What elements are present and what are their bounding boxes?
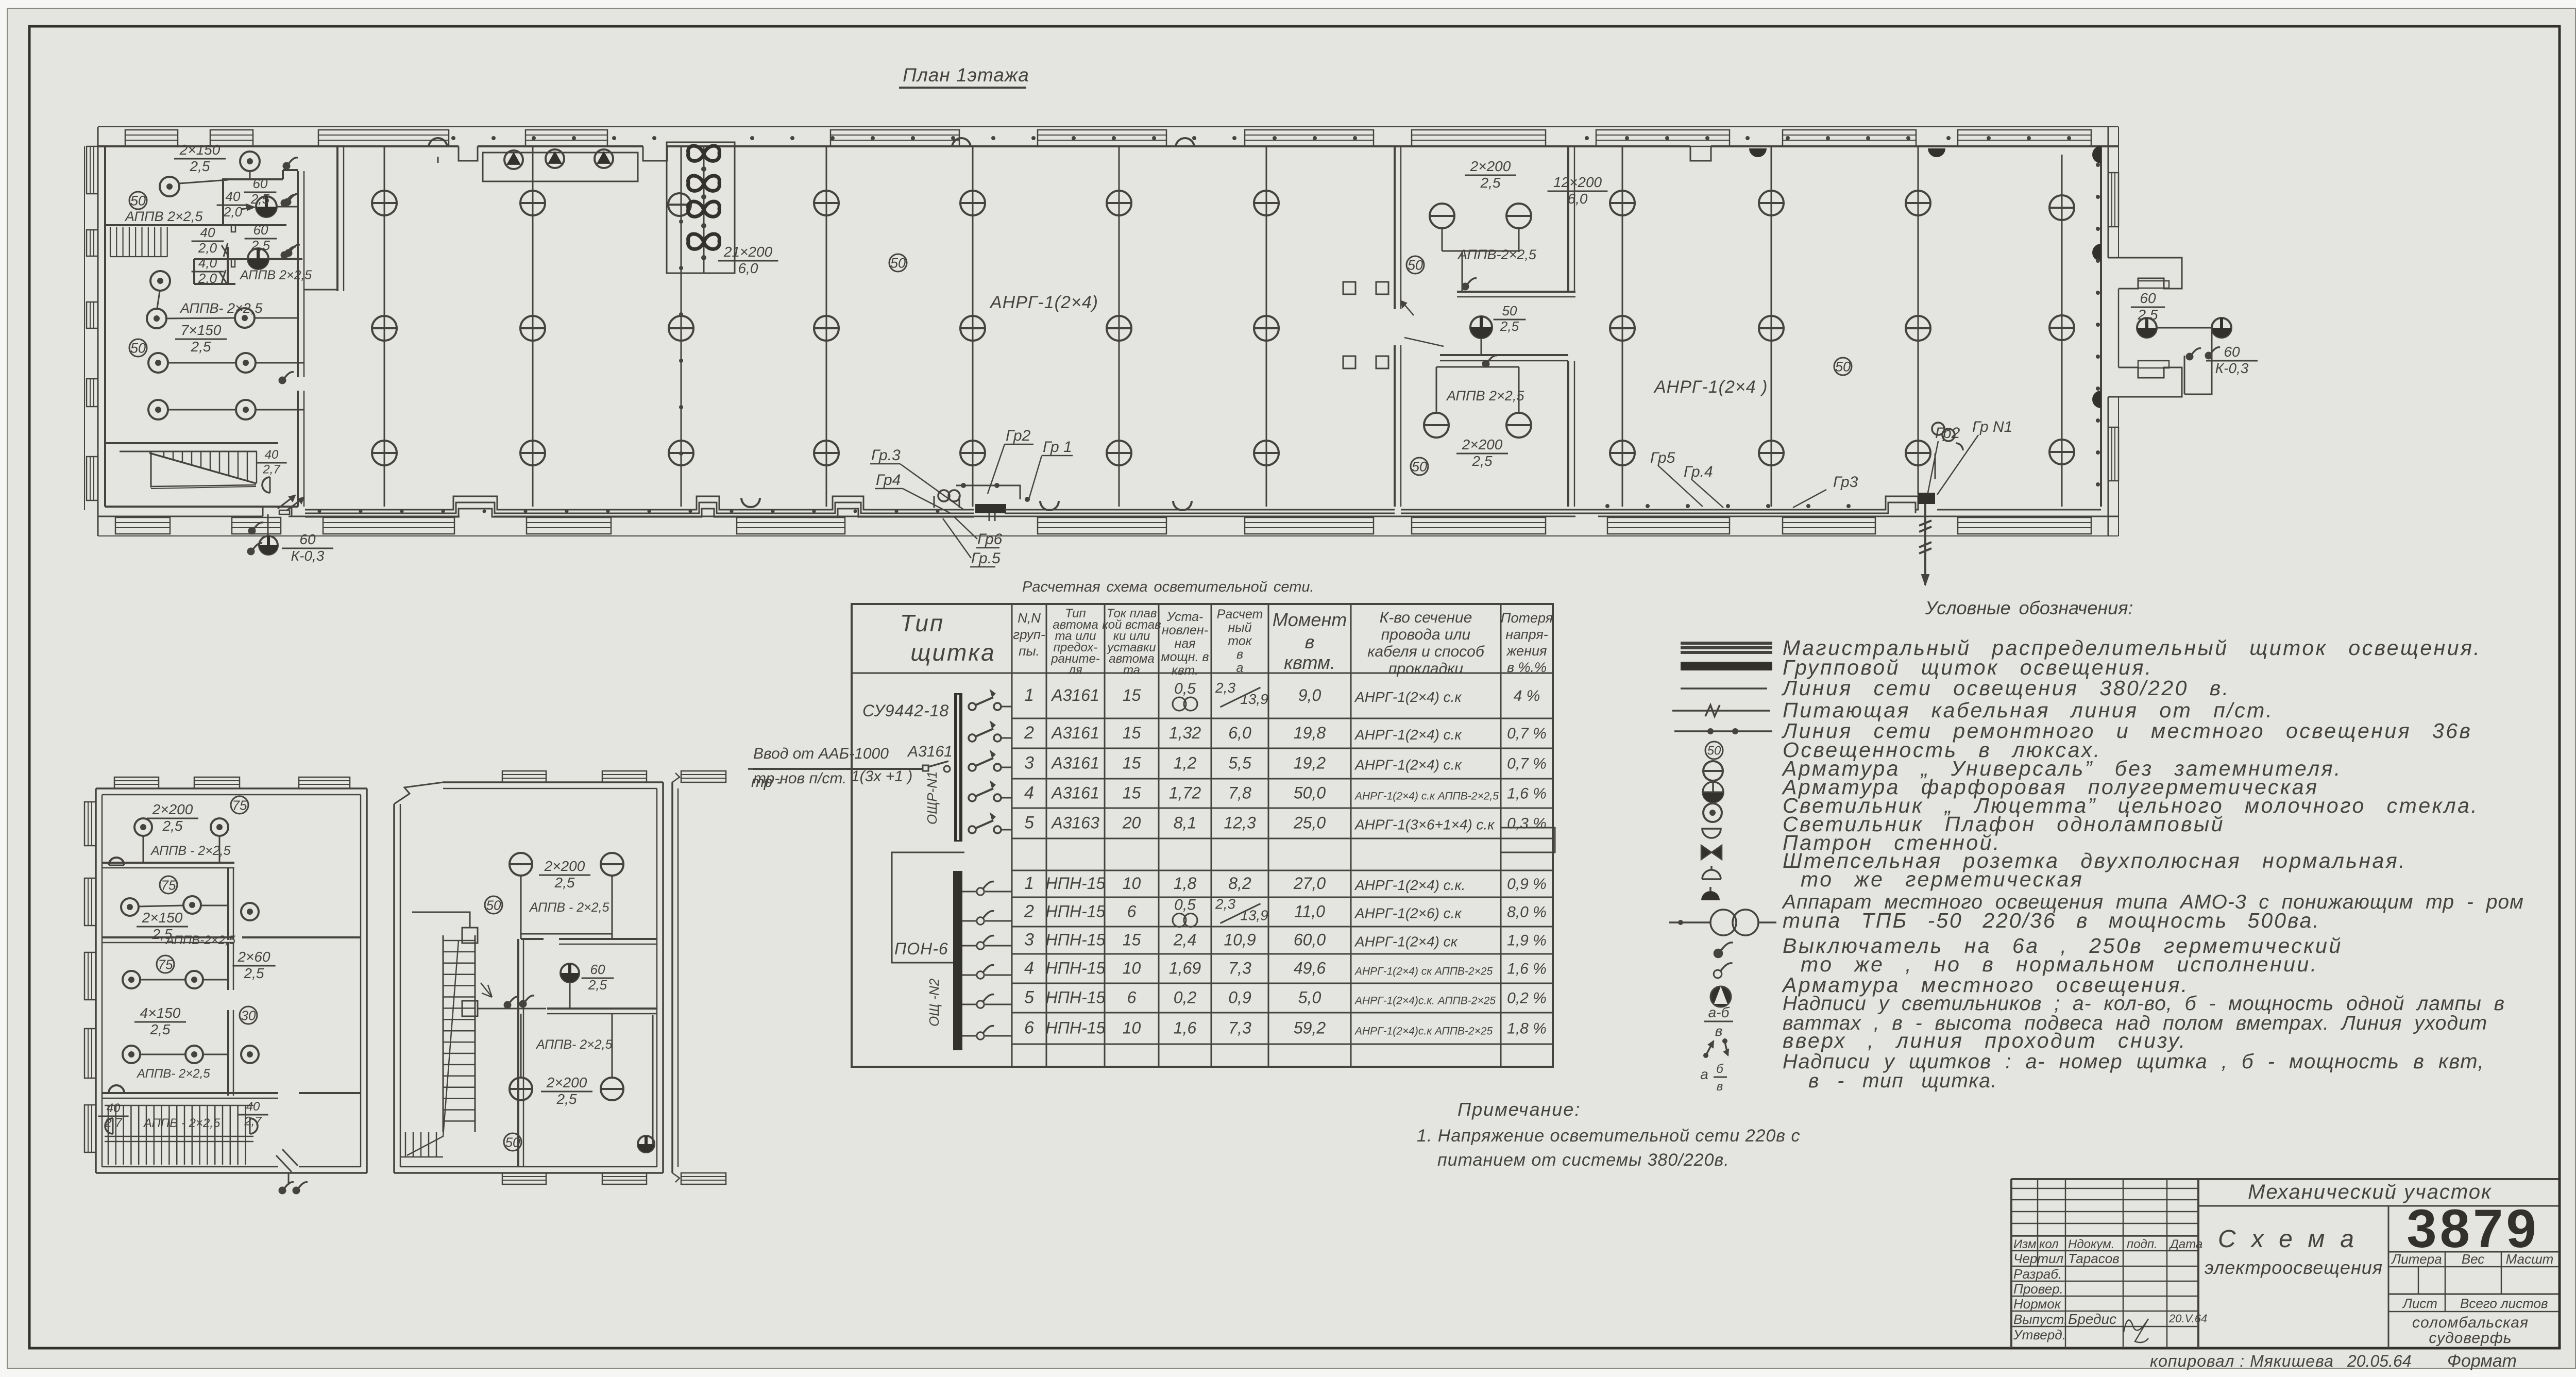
svg-text:Линия сети освещения 380: Линия сети освещения 380/220 в. xyxy=(1781,676,2230,700)
svg-text:6: 6 xyxy=(1127,902,1137,921)
svg-text:50: 50 xyxy=(1412,459,1427,475)
svg-text:Уста-: Уста- xyxy=(1166,610,1204,624)
svg-text:10,9: 10,9 xyxy=(1224,931,1256,949)
svg-text:75: 75 xyxy=(161,877,176,893)
svg-text:1,2: 1,2 xyxy=(1174,754,1197,773)
svg-text:50: 50 xyxy=(130,193,146,209)
svg-text:3879: 3879 xyxy=(2406,1199,2539,1259)
svg-text:50: 50 xyxy=(1502,303,1517,318)
svg-text:груп-: груп- xyxy=(1013,627,1045,642)
svg-text:2,5: 2,5 xyxy=(1500,318,1519,334)
svg-text:Гр N1: Гр N1 xyxy=(1972,418,2012,435)
svg-text:59,2: 59,2 xyxy=(1294,1019,1326,1037)
svg-text:15: 15 xyxy=(1123,754,1141,773)
svg-text:прокладки: прокладки xyxy=(1388,660,1463,677)
svg-text:АППВ - 2×2,5: АППВ - 2×2,5 xyxy=(143,1116,221,1130)
svg-text:АНРГ-1(2×4) с.к: АНРГ-1(2×4) с.к xyxy=(1354,757,1462,773)
svg-text:1: 1 xyxy=(1024,685,1034,705)
svg-text:2,0: 2,0 xyxy=(198,240,217,256)
svg-text:19,2: 19,2 xyxy=(1294,754,1326,773)
svg-text:10: 10 xyxy=(1123,959,1141,978)
svg-text:40: 40 xyxy=(107,1101,121,1115)
svg-text:60: 60 xyxy=(253,176,268,191)
svg-text:ля: ля xyxy=(1067,663,1082,677)
svg-text:2,5: 2,5 xyxy=(554,875,575,891)
svg-text:2: 2 xyxy=(1024,723,1034,743)
svg-text:АППВ- 2×2,5: АППВ- 2×2,5 xyxy=(535,1037,613,1052)
svg-text:50: 50 xyxy=(1707,744,1721,758)
svg-text:1,72: 1,72 xyxy=(1169,784,1201,802)
svg-text:в: в xyxy=(1236,647,1243,662)
svg-text:60,0: 60,0 xyxy=(1294,931,1326,949)
svg-text:Ввод от ААБ-1000: Ввод от ААБ-1000 xyxy=(753,745,889,762)
svg-text:новлен-: новлен- xyxy=(1162,623,1208,637)
svg-text:50: 50 xyxy=(1408,258,1423,273)
svg-text:20.V.64: 20.V.64 xyxy=(2168,1312,2207,1325)
svg-text:2×200: 2×200 xyxy=(1462,436,1503,452)
svg-text:50: 50 xyxy=(890,256,906,271)
svg-text:6: 6 xyxy=(1024,1018,1034,1038)
svg-text:19,8: 19,8 xyxy=(1294,724,1326,742)
svg-text:К-0,3: К-0,3 xyxy=(2215,360,2249,376)
svg-text:20.05.64: 20.05.64 xyxy=(2347,1352,2412,1370)
svg-text:а-б: а-б xyxy=(1708,1004,1730,1020)
svg-text:Бредис: Бредис xyxy=(2068,1311,2116,1327)
svg-text:НПН-15: НПН-15 xyxy=(1046,988,1106,1007)
svg-text:4×150: 4×150 xyxy=(140,1005,181,1021)
svg-text:Потеря: Потеря xyxy=(1501,610,1553,626)
svg-text:1(3х +1 ): 1(3х +1 ) xyxy=(851,768,912,785)
svg-text:3: 3 xyxy=(1024,753,1034,773)
svg-text:питанием от системы 380/220: питанием от системы 380/220в. xyxy=(1437,1150,1730,1170)
svg-text:0,9 %: 0,9 % xyxy=(1507,876,1547,893)
svg-text:7,3: 7,3 xyxy=(1228,959,1251,978)
svg-text:НПН-15: НПН-15 xyxy=(1046,902,1106,921)
svg-text:6,0: 6,0 xyxy=(1228,724,1251,742)
svg-text:2,0: 2,0 xyxy=(198,271,217,286)
svg-text:квтм.: квтм. xyxy=(1284,652,1335,673)
svg-text:Примечание:: Примечание: xyxy=(1458,1099,1581,1120)
svg-text:Тип: Тип xyxy=(900,610,944,636)
svg-text:в: в xyxy=(1717,1080,1723,1094)
svg-text:Формат: Формат xyxy=(2447,1351,2517,1371)
svg-text:0,7 %: 0,7 % xyxy=(1507,725,1547,742)
svg-text:60: 60 xyxy=(2224,344,2240,360)
svg-text:20: 20 xyxy=(1122,814,1141,832)
svg-text:2,5: 2,5 xyxy=(1480,175,1501,191)
svg-text:АНРГ-1(2×4) ск АППВ-2×25: АНРГ-1(2×4) ск АППВ-2×25 xyxy=(1354,966,1493,978)
svg-text:Расчетная схема осветите: Расчетная схема осветительной сети. xyxy=(1022,579,1314,595)
svg-text:50: 50 xyxy=(505,1134,520,1150)
svg-text:ток: ток xyxy=(1228,634,1252,648)
svg-text:АППВ 2×2,5: АППВ 2×2,5 xyxy=(1446,388,1524,404)
svg-text:5: 5 xyxy=(1024,813,1034,833)
svg-text:15: 15 xyxy=(1123,784,1141,802)
svg-text:А3161: А3161 xyxy=(907,743,953,760)
svg-text:А3161: А3161 xyxy=(1050,784,1099,802)
svg-text:типа ТПБ -50 220/36 в: типа ТПБ -50 220/36 в мощность 500ва. xyxy=(1783,909,2320,932)
svg-text:СУ9442-18: СУ9442-18 xyxy=(862,701,949,720)
svg-text:13,9: 13,9 xyxy=(1240,908,1268,923)
svg-text:2,5: 2,5 xyxy=(162,818,183,834)
svg-text:6: 6 xyxy=(1127,988,1137,1007)
svg-text:в %.%: в %.% xyxy=(1507,660,1547,675)
svg-text:Всего листов: Всего листов xyxy=(2460,1296,2548,1311)
svg-text:ПОН-6: ПОН-6 xyxy=(894,939,948,958)
svg-text:копировал : Мякишева: копировал : Мякишева xyxy=(2150,1352,2334,1370)
svg-text:1,69: 1,69 xyxy=(1169,959,1201,978)
svg-text:Изм.: Изм. xyxy=(2013,1237,2040,1251)
svg-text:12,3: 12,3 xyxy=(1224,814,1256,832)
svg-text:Дата: Дата xyxy=(2168,1237,2202,1251)
svg-text:8,1: 8,1 xyxy=(1174,814,1196,832)
svg-text:Гр.4: Гр.4 xyxy=(1684,463,1713,480)
svg-text:в: в xyxy=(1715,1023,1723,1039)
svg-text:0,3 %: 0,3 % xyxy=(1507,815,1547,832)
svg-text:1,6: 1,6 xyxy=(1174,1019,1197,1037)
svg-text:АНРГ-1(2×4): АНРГ-1(2×4) xyxy=(989,293,1098,312)
svg-text:ОЩ -N2: ОЩ -N2 xyxy=(926,978,942,1027)
svg-text:А3163: А3163 xyxy=(1050,814,1099,832)
svg-text:2×200: 2×200 xyxy=(546,1074,587,1090)
svg-text:Разраб.: Разраб. xyxy=(2013,1266,2062,1282)
svg-text:План 1этажа: План 1этажа xyxy=(903,64,1029,86)
svg-text:2×200: 2×200 xyxy=(152,801,193,817)
svg-text:АППВ-2×2,5: АППВ-2×2,5 xyxy=(165,933,236,947)
svg-text:а: а xyxy=(1700,1066,1708,1082)
svg-text:Момент: Момент xyxy=(1273,609,1347,630)
svg-text:1,6 %: 1,6 % xyxy=(1507,961,1547,978)
svg-text:АНРГ-1(2×4) с.к.: АНРГ-1(2×4) с.к. xyxy=(1354,877,1465,893)
svg-text:Провер.: Провер. xyxy=(2013,1281,2063,1297)
svg-text:2,3: 2,3 xyxy=(1215,680,1235,696)
svg-text:0,7 %: 0,7 % xyxy=(1507,755,1547,773)
svg-text:та: та xyxy=(1123,663,1140,677)
svg-text:в - тип щитка.: в - тип щитка. xyxy=(1808,1070,1997,1092)
svg-text:2,5: 2,5 xyxy=(244,965,264,981)
svg-text:НПН-15: НПН-15 xyxy=(1046,1019,1106,1037)
svg-text:6,0: 6,0 xyxy=(738,260,758,276)
svg-text:2: 2 xyxy=(1024,902,1034,921)
svg-text:1,6 %: 1,6 % xyxy=(1507,785,1547,802)
svg-text:кабеля и способ: кабеля и способ xyxy=(1367,643,1485,660)
svg-text:8,2: 8,2 xyxy=(1228,874,1251,893)
svg-text:Схема: Схема xyxy=(2218,1225,2369,1253)
svg-text:60: 60 xyxy=(590,962,605,977)
svg-text:10: 10 xyxy=(1123,874,1141,893)
svg-text:1,8 %: 1,8 % xyxy=(1507,1020,1547,1037)
svg-text:электроосвещения: электроосвещения xyxy=(2205,1257,2383,1278)
svg-text:40: 40 xyxy=(200,225,215,240)
svg-text:27,0: 27,0 xyxy=(1293,874,1326,893)
svg-text:А3161: А3161 xyxy=(1050,724,1099,742)
svg-text:2,5: 2,5 xyxy=(556,1091,577,1107)
svg-text:2,7: 2,7 xyxy=(104,1116,123,1130)
svg-text:15: 15 xyxy=(1123,724,1141,742)
svg-text:кол: кол xyxy=(2039,1237,2059,1251)
svg-text:40: 40 xyxy=(246,1100,260,1114)
svg-text:60: 60 xyxy=(2140,290,2156,306)
svg-text:2,5: 2,5 xyxy=(250,191,270,207)
svg-text:2,7: 2,7 xyxy=(262,462,281,476)
svg-text:Нормок: Нормок xyxy=(2013,1296,2062,1312)
svg-text:9,0: 9,0 xyxy=(1298,686,1321,704)
svg-text:Расчет: Расчет xyxy=(1217,607,1263,622)
svg-text:ОЩР-N1: ОЩР-N1 xyxy=(924,771,940,825)
svg-text:7,3: 7,3 xyxy=(1228,1019,1251,1037)
svg-text:А3161: А3161 xyxy=(1050,686,1099,704)
svg-text:8,0 %: 8,0 % xyxy=(1507,904,1547,921)
svg-text:40: 40 xyxy=(265,448,279,462)
svg-text:0,5: 0,5 xyxy=(1174,680,1196,697)
svg-text:2×200: 2×200 xyxy=(1470,158,1511,174)
svg-text:1,9 %: 1,9 % xyxy=(1507,932,1547,949)
svg-text:60: 60 xyxy=(299,531,316,547)
svg-text:4: 4 xyxy=(1024,959,1034,978)
svg-text:4: 4 xyxy=(1024,783,1034,803)
svg-text:Гр.5: Гр.5 xyxy=(971,550,1001,567)
svg-text:50: 50 xyxy=(486,897,501,913)
svg-text:ный: ный xyxy=(1228,620,1251,635)
svg-text:2,0: 2,0 xyxy=(223,204,243,220)
svg-text:0,2: 0,2 xyxy=(1174,988,1197,1007)
svg-text:Вес: Вес xyxy=(2462,1251,2485,1267)
svg-text:10: 10 xyxy=(1123,1019,1141,1037)
svg-text:Гр3: Гр3 xyxy=(1833,474,1858,491)
svg-text:АППВ-2×2,5: АППВ-2×2,5 xyxy=(1457,247,1537,262)
svg-text:в: в xyxy=(1305,631,1315,652)
svg-text:тр -: тр - xyxy=(751,774,782,791)
svg-text:АППВ- 2×2,5: АППВ- 2×2,5 xyxy=(136,1067,210,1081)
svg-text:АППВ 2×2,5: АППВ 2×2,5 xyxy=(124,209,203,224)
svg-text:21×200: 21×200 xyxy=(723,244,773,260)
svg-text:соломбальская: соломбальская xyxy=(2412,1314,2529,1331)
svg-text:АППВ 2×2,5: АППВ 2×2,5 xyxy=(239,268,312,282)
svg-text:Гр6: Гр6 xyxy=(977,531,1003,548)
svg-text:50: 50 xyxy=(1835,359,1851,375)
svg-text:мощн. в: мощн. в xyxy=(1161,650,1209,664)
svg-text:5,5: 5,5 xyxy=(1228,754,1251,773)
svg-text:2,5: 2,5 xyxy=(2138,307,2158,323)
svg-text:Гр 1: Гр 1 xyxy=(1043,439,1072,456)
svg-text:7×150: 7×150 xyxy=(181,322,222,338)
svg-text:2,5: 2,5 xyxy=(1472,453,1493,469)
svg-text:0,2 %: 0,2 % xyxy=(1507,990,1547,1007)
svg-text:АНРГ-1(2×4 ): АНРГ-1(2×4 ) xyxy=(1653,377,1768,397)
svg-text:Гр2: Гр2 xyxy=(1935,425,1960,442)
svg-text:Надписи у светильников ; а-: Надписи у светильников ; а- кол-во, б - … xyxy=(1783,993,2505,1015)
svg-text:4,0: 4,0 xyxy=(198,255,217,271)
svg-text:2,5: 2,5 xyxy=(191,339,211,355)
svg-text:3: 3 xyxy=(1024,930,1034,950)
svg-text:Лист: Лист xyxy=(2402,1296,2437,1311)
svg-text:Утверд.: Утверд. xyxy=(2013,1327,2066,1342)
svg-text:2,5: 2,5 xyxy=(190,158,210,174)
svg-text:Чертил: Чертил xyxy=(2013,1251,2064,1266)
svg-text:75: 75 xyxy=(232,797,247,813)
svg-text:49,6: 49,6 xyxy=(1294,959,1326,978)
svg-text:К-0,3: К-0,3 xyxy=(291,548,325,564)
svg-text:Гр2: Гр2 xyxy=(1006,427,1031,444)
svg-text:6,0: 6,0 xyxy=(1568,191,1588,207)
svg-text:2,3: 2,3 xyxy=(1215,896,1235,912)
svg-text:40: 40 xyxy=(226,189,241,204)
svg-text:60: 60 xyxy=(253,222,268,238)
svg-text:50,0: 50,0 xyxy=(1294,784,1326,802)
svg-text:то же герметическая: то же герметическая xyxy=(1801,867,2083,891)
svg-text:Гр4: Гр4 xyxy=(876,472,901,489)
svg-text:2,7: 2,7 xyxy=(244,1114,262,1128)
svg-text:АППВ- 2×2,5: АППВ- 2×2,5 xyxy=(179,300,263,316)
svg-text:Литера: Литера xyxy=(2391,1251,2442,1267)
svg-text:12×200: 12×200 xyxy=(1553,174,1602,190)
svg-text:11,0: 11,0 xyxy=(1294,902,1325,921)
svg-text:жения: жения xyxy=(1506,643,1547,659)
svg-text:АНРГ-1(2×4) ск: АНРГ-1(2×4) ск xyxy=(1354,934,1459,950)
svg-text:15: 15 xyxy=(1123,686,1141,704)
svg-text:0,5: 0,5 xyxy=(1174,897,1196,914)
svg-text:Ндокум.: Ндокум. xyxy=(2068,1237,2114,1251)
svg-text:25,0: 25,0 xyxy=(1293,814,1326,832)
svg-text:А3161: А3161 xyxy=(1050,754,1099,773)
svg-text:ная: ная xyxy=(1174,636,1195,651)
svg-text:АНРГ-1(2×4)с.к АППВ-2×25: АНРГ-1(2×4)с.к АППВ-2×25 xyxy=(1354,1026,1493,1037)
svg-text:50: 50 xyxy=(130,341,146,356)
svg-text:1: 1 xyxy=(1024,874,1034,893)
svg-text:НПН-15: НПН-15 xyxy=(1046,959,1106,978)
svg-text:Выпуст.: Выпуст. xyxy=(2013,1312,2067,1327)
svg-text:НПН-15: НПН-15 xyxy=(1046,931,1106,949)
svg-text:АППВ - 2×2,5: АППВ - 2×2,5 xyxy=(150,844,231,858)
svg-text:2×150: 2×150 xyxy=(142,910,183,926)
svg-text:пы.: пы. xyxy=(1019,643,1040,659)
svg-text:б: б xyxy=(1716,1062,1724,1076)
svg-text:провода или: провода или xyxy=(1381,626,1471,643)
svg-text:квт.: квт. xyxy=(1172,663,1198,678)
svg-text:Масшт: Масшт xyxy=(2506,1251,2554,1267)
svg-text:30: 30 xyxy=(241,1007,256,1023)
svg-text:судоверфь: судоверфь xyxy=(2429,1330,2512,1347)
svg-text:АНРГ-1(3×6+1×4) с.к: АНРГ-1(3×6+1×4) с.к xyxy=(1354,817,1495,833)
svg-text:а: а xyxy=(1236,661,1244,675)
svg-text:1,8: 1,8 xyxy=(1174,874,1197,893)
svg-text:2,5: 2,5 xyxy=(150,1021,171,1037)
svg-text:13,9: 13,9 xyxy=(1240,691,1268,707)
svg-text:75: 75 xyxy=(158,956,173,972)
svg-text:1. Напряжение осветительной: 1. Напряжение осветительной сети 220в с xyxy=(1417,1126,1800,1146)
svg-text:подп.: подп. xyxy=(2127,1237,2158,1251)
svg-text:НПН-15: НПН-15 xyxy=(1046,874,1106,893)
svg-text:К-во сечение: К-во сечение xyxy=(1380,609,1472,626)
svg-text:АППВ - 2×2,5: АППВ - 2×2,5 xyxy=(529,900,609,915)
svg-text:Условные обозначения:: Условные обозначения: xyxy=(1925,597,2133,618)
svg-text:АНРГ-1(2×6) с.к: АНРГ-1(2×6) с.к xyxy=(1354,905,1462,921)
svg-text:2,5: 2,5 xyxy=(588,977,607,993)
svg-text:2,4: 2,4 xyxy=(1173,931,1196,949)
svg-text:2×150: 2×150 xyxy=(179,142,221,158)
svg-text:5: 5 xyxy=(1024,988,1034,1007)
svg-text:4 %: 4 % xyxy=(1514,687,1540,704)
svg-text:напря-: напря- xyxy=(1505,627,1548,642)
svg-text:2×60: 2×60 xyxy=(237,949,270,965)
svg-text:7,8: 7,8 xyxy=(1228,784,1251,802)
svg-text:2×200: 2×200 xyxy=(544,858,585,874)
svg-text:АНРГ-1(2×4) с.к: АНРГ-1(2×4) с.к xyxy=(1354,689,1462,705)
svg-text:АНРГ-1(2×4)с.к. АППВ-2×25: АНРГ-1(2×4)с.к. АППВ-2×25 xyxy=(1354,995,1496,1007)
svg-text:Гр5: Гр5 xyxy=(1650,449,1675,466)
svg-text:5,0: 5,0 xyxy=(1298,988,1321,1007)
svg-text:0,9: 0,9 xyxy=(1228,988,1251,1007)
svg-text:вверх , линия проходит: вверх , линия проходит снизу. xyxy=(1783,1029,2187,1052)
svg-text:N,N: N,N xyxy=(1018,610,1041,626)
svg-text:АНРГ-1(2×4) с.к: АНРГ-1(2×4) с.к xyxy=(1354,727,1462,743)
svg-text:Тарасов: Тарасов xyxy=(2068,1251,2120,1266)
svg-text:1,32: 1,32 xyxy=(1169,724,1201,742)
svg-text:АНРГ-1(2×4) с.к АППВ-2×2,5: АНРГ-1(2×4) с.к АППВ-2×2,5 xyxy=(1354,791,1499,802)
svg-text:15: 15 xyxy=(1123,931,1141,949)
svg-text:щитка: щитка xyxy=(910,639,995,666)
svg-text:Гр.3: Гр.3 xyxy=(871,447,901,464)
svg-text:2,5: 2,5 xyxy=(251,238,270,253)
